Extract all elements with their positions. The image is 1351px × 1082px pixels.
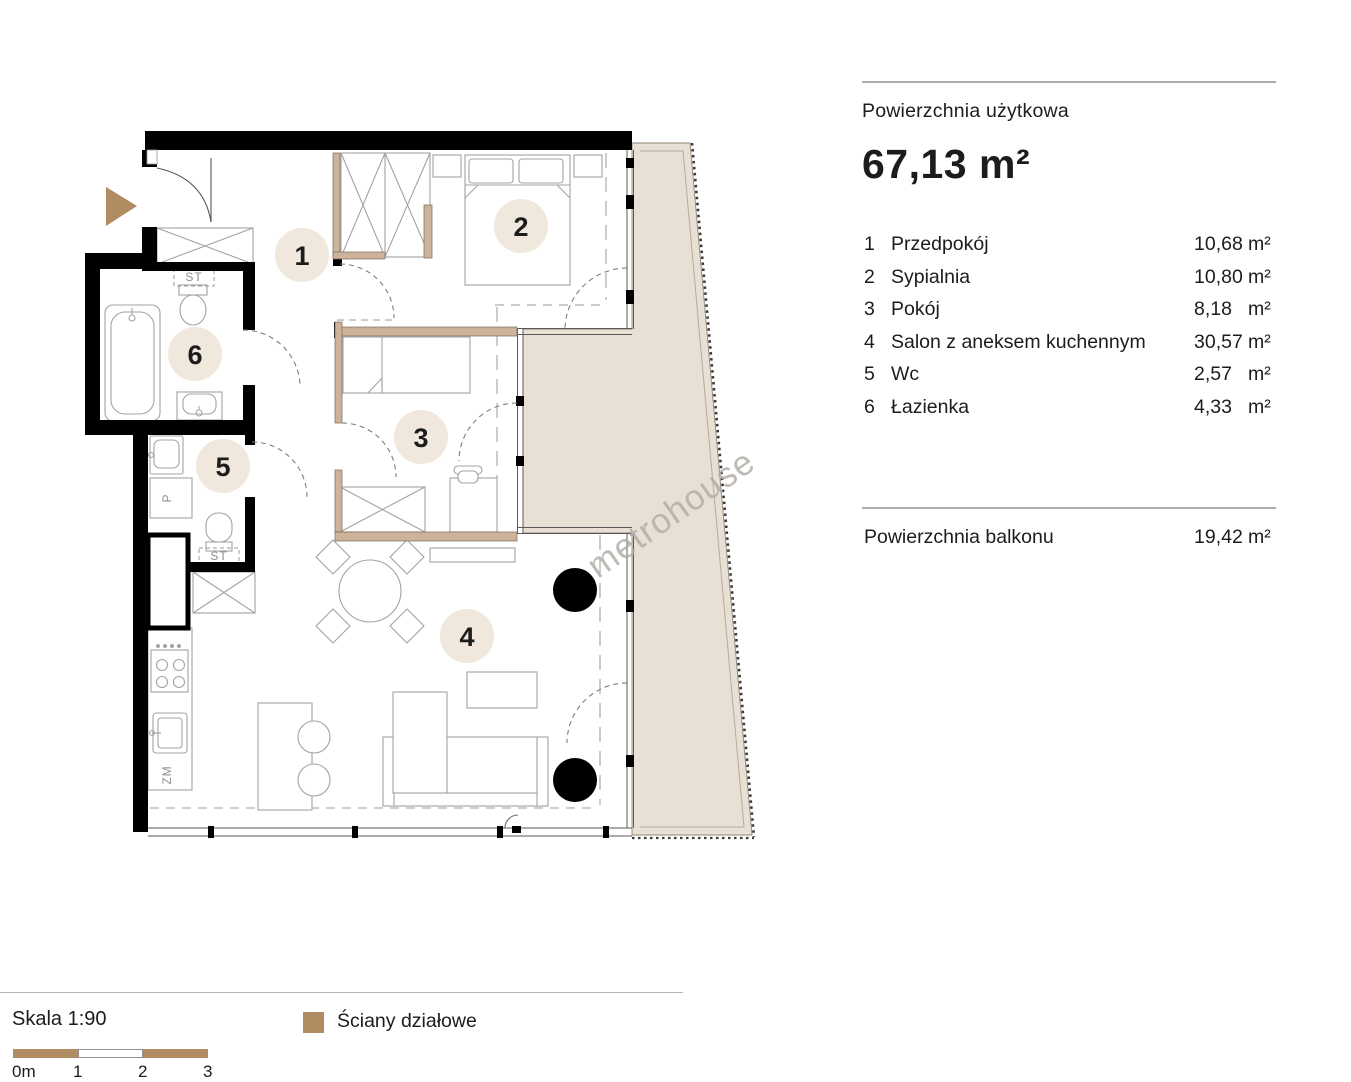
balcony-label: Powierzchnia balkonu — [864, 521, 1054, 553]
scale-bar — [13, 1049, 208, 1058]
room-row-1: 1 Przedpokój 10,68 m² — [862, 228, 1276, 261]
room-row-5: 5 Wc 2,57 m² — [862, 358, 1276, 391]
scale-tick: 2 — [138, 1062, 147, 1082]
divider-top — [862, 81, 1276, 83]
room-row-3: 3 Pokój 8,18 m² — [862, 293, 1276, 326]
room-number-6: 6 — [187, 340, 202, 370]
coffee-table — [467, 672, 537, 708]
dining-set — [316, 540, 424, 643]
entrance-jamb — [147, 150, 157, 164]
balcony-row: Powierzchnia balkonu 19,42 m² — [862, 521, 1276, 553]
scale-segment — [143, 1049, 208, 1058]
balcony-area: 19,42 — [1194, 521, 1243, 553]
entrance-arrow-icon — [106, 187, 137, 226]
room-row-2: 2 Sypialnia 10,80 m² — [862, 261, 1276, 294]
room-row-name: Pokój — [891, 293, 940, 326]
desk — [450, 466, 497, 532]
column — [553, 758, 597, 802]
room-number-4: 4 — [459, 622, 474, 652]
wardrobe-wc — [193, 572, 255, 613]
label-dishwasher-zm: ZM — [160, 765, 174, 784]
scale-segment — [13, 1049, 78, 1058]
room-row-area: 10,68 — [1194, 228, 1243, 261]
room-number-5: 5 — [215, 452, 230, 482]
room-row-number: 1 — [864, 228, 875, 261]
room-marker-4: 4 — [440, 609, 494, 663]
floor-plan: ST ST P ZM 1 2 3 4 5 6 metrohou — [0, 0, 770, 900]
room-row-name: Sypialnia — [891, 261, 970, 294]
column — [553, 568, 597, 612]
room-row-name: Przedpokój — [891, 228, 989, 261]
room-row-number: 2 — [864, 261, 875, 294]
room-row-number: 5 — [864, 358, 875, 391]
sofa — [383, 692, 548, 806]
sink-wc — [149, 436, 184, 474]
room-row-unit: m² — [1248, 391, 1271, 424]
scale-tick: 0m — [12, 1062, 36, 1082]
room-number-1: 1 — [294, 241, 309, 271]
side-table — [258, 703, 330, 810]
divider-balcony — [862, 507, 1276, 509]
partition-legend-swatch — [303, 1012, 324, 1033]
room-row-unit: m² — [1248, 228, 1271, 261]
room-row-6: 6 Łazienka 4,33 m² — [862, 391, 1276, 424]
scale-tick: 1 — [73, 1062, 82, 1082]
scale-tick: 3 — [203, 1062, 212, 1082]
toilet-bathroom — [179, 285, 207, 325]
wardrobe-room3 — [340, 487, 425, 532]
room-row-area: 2,57 — [1194, 358, 1232, 391]
room-row-area: 30,57 — [1194, 326, 1243, 359]
floorplan-page: { "plan": { "watermark": "metrohouse", "… — [0, 0, 1351, 1080]
summary-panel: Powierzchnia użytkowa 67,13 m² 1 Przedpo… — [862, 0, 1276, 600]
entrance-door — [157, 158, 211, 222]
room-row-unit: m² — [1248, 358, 1271, 391]
label-st-bathroom: ST — [185, 270, 202, 284]
room-row-area: 10,80 — [1194, 261, 1243, 294]
balcony-unit: m² — [1248, 521, 1271, 553]
sink-bathroom — [177, 392, 222, 420]
room-row-unit: m² — [1248, 326, 1271, 359]
room-row-name: Łazienka — [891, 391, 969, 424]
room-row-name: Wc — [891, 358, 919, 391]
shaft-box-walled — [148, 535, 188, 628]
room-row-area: 8,18 — [1194, 293, 1232, 326]
room-number-3: 3 — [413, 423, 428, 453]
usable-area-value: 67,13 m² — [862, 141, 1030, 188]
wardrobe-tall — [341, 153, 430, 257]
partition-legend-label: Ściany działowe — [337, 1010, 477, 1033]
divider-footer — [0, 992, 683, 993]
console-shelf — [430, 548, 515, 562]
room-number-2: 2 — [513, 212, 528, 242]
room-marker-5: 5 — [196, 439, 250, 493]
bathtub — [105, 305, 160, 421]
scale-segment — [78, 1049, 143, 1058]
room-row-unit: m² — [1248, 293, 1271, 326]
single-bed — [343, 337, 470, 393]
label-st-wc: ST — [210, 549, 227, 563]
wardrobe-hallway — [157, 228, 253, 264]
room-marker-1: 1 — [275, 228, 329, 282]
usable-area-label: Powierzchnia użytkowa — [862, 100, 1069, 123]
toilet-wc — [206, 513, 232, 551]
room-row-number: 3 — [864, 293, 875, 326]
room-marker-2: 2 — [494, 199, 548, 253]
room-row-number: 6 — [864, 391, 875, 424]
room-row-number: 4 — [864, 326, 875, 359]
room-row-name: Salon z aneksem kuchennym — [891, 326, 1146, 359]
label-washer-p: P — [160, 493, 174, 502]
room-row-area: 4,33 — [1194, 391, 1232, 424]
scale-label: Skala 1:90 — [12, 1008, 107, 1031]
room-row-4: 4 Salon z aneksem kuchennym 30,57 m² — [862, 326, 1276, 359]
room-row-unit: m² — [1248, 261, 1271, 294]
room-marker-3: 3 — [394, 410, 448, 464]
room-marker-6: 6 — [168, 327, 222, 381]
